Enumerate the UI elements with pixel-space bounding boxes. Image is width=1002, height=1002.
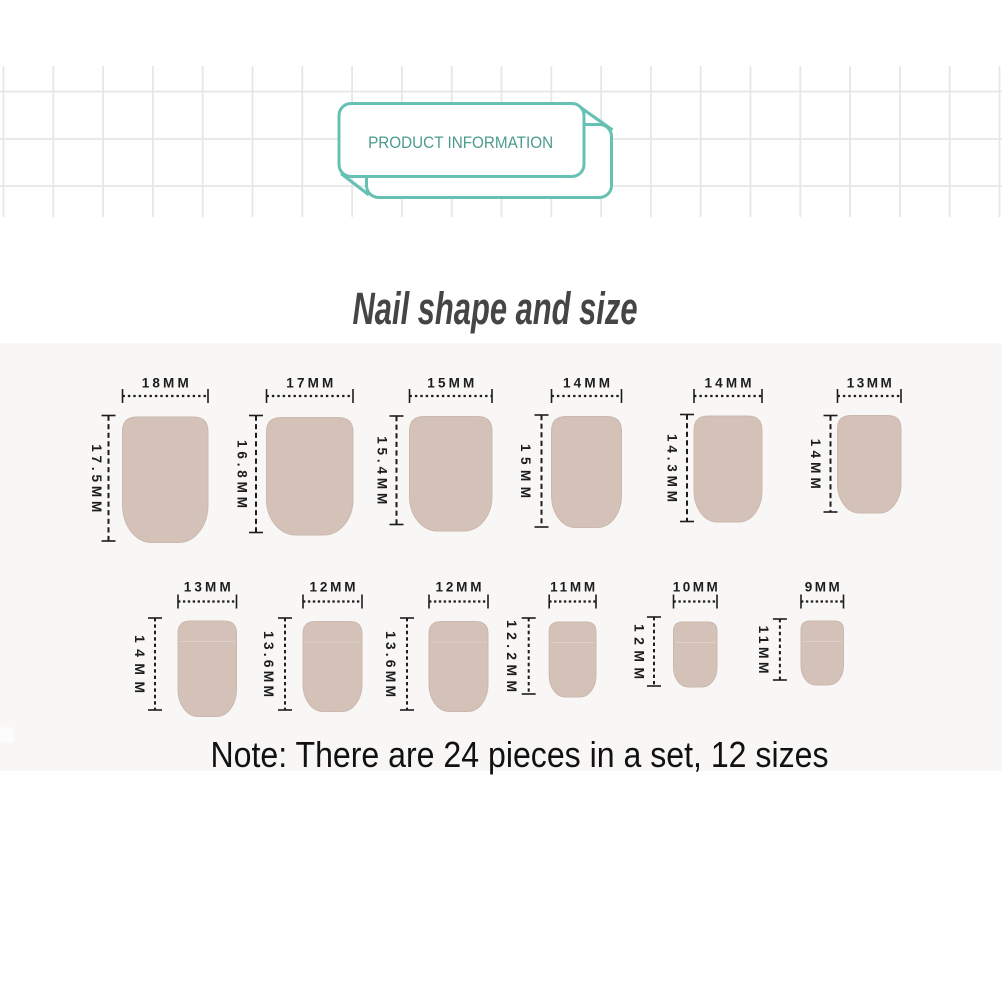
svg-text:14MM: 14MM <box>563 376 610 391</box>
svg-text:13.6MM: 13.6MM <box>383 631 399 697</box>
svg-text:17MM: 17MM <box>286 376 333 391</box>
svg-text:13MM: 13MM <box>184 580 231 595</box>
svg-text:9MM: 9MM <box>805 580 840 595</box>
svg-text:13MM: 13MM <box>847 376 892 391</box>
svg-text:15MM: 15MM <box>427 376 474 391</box>
svg-text:PRODUCT INFORMATION: PRODUCT INFORMATION <box>368 134 553 152</box>
svg-text:10MM: 10MM <box>673 580 718 595</box>
svg-text:Note: There are 24 pieces in a: Note: There are 24 pieces in a set, 12 s… <box>211 734 829 775</box>
svg-text:Nail shape and size: Nail shape and size <box>353 283 638 334</box>
svg-text:11MM: 11MM <box>550 580 595 595</box>
svg-text:18MM: 18MM <box>142 376 189 391</box>
svg-text:14MM: 14MM <box>705 376 752 391</box>
svg-text:12MM: 12MM <box>310 580 356 595</box>
svg-text:13.6MM: 13.6MM <box>261 631 277 697</box>
svg-text:12MM: 12MM <box>436 580 482 595</box>
svg-text:14MM: 14MM <box>808 439 823 489</box>
